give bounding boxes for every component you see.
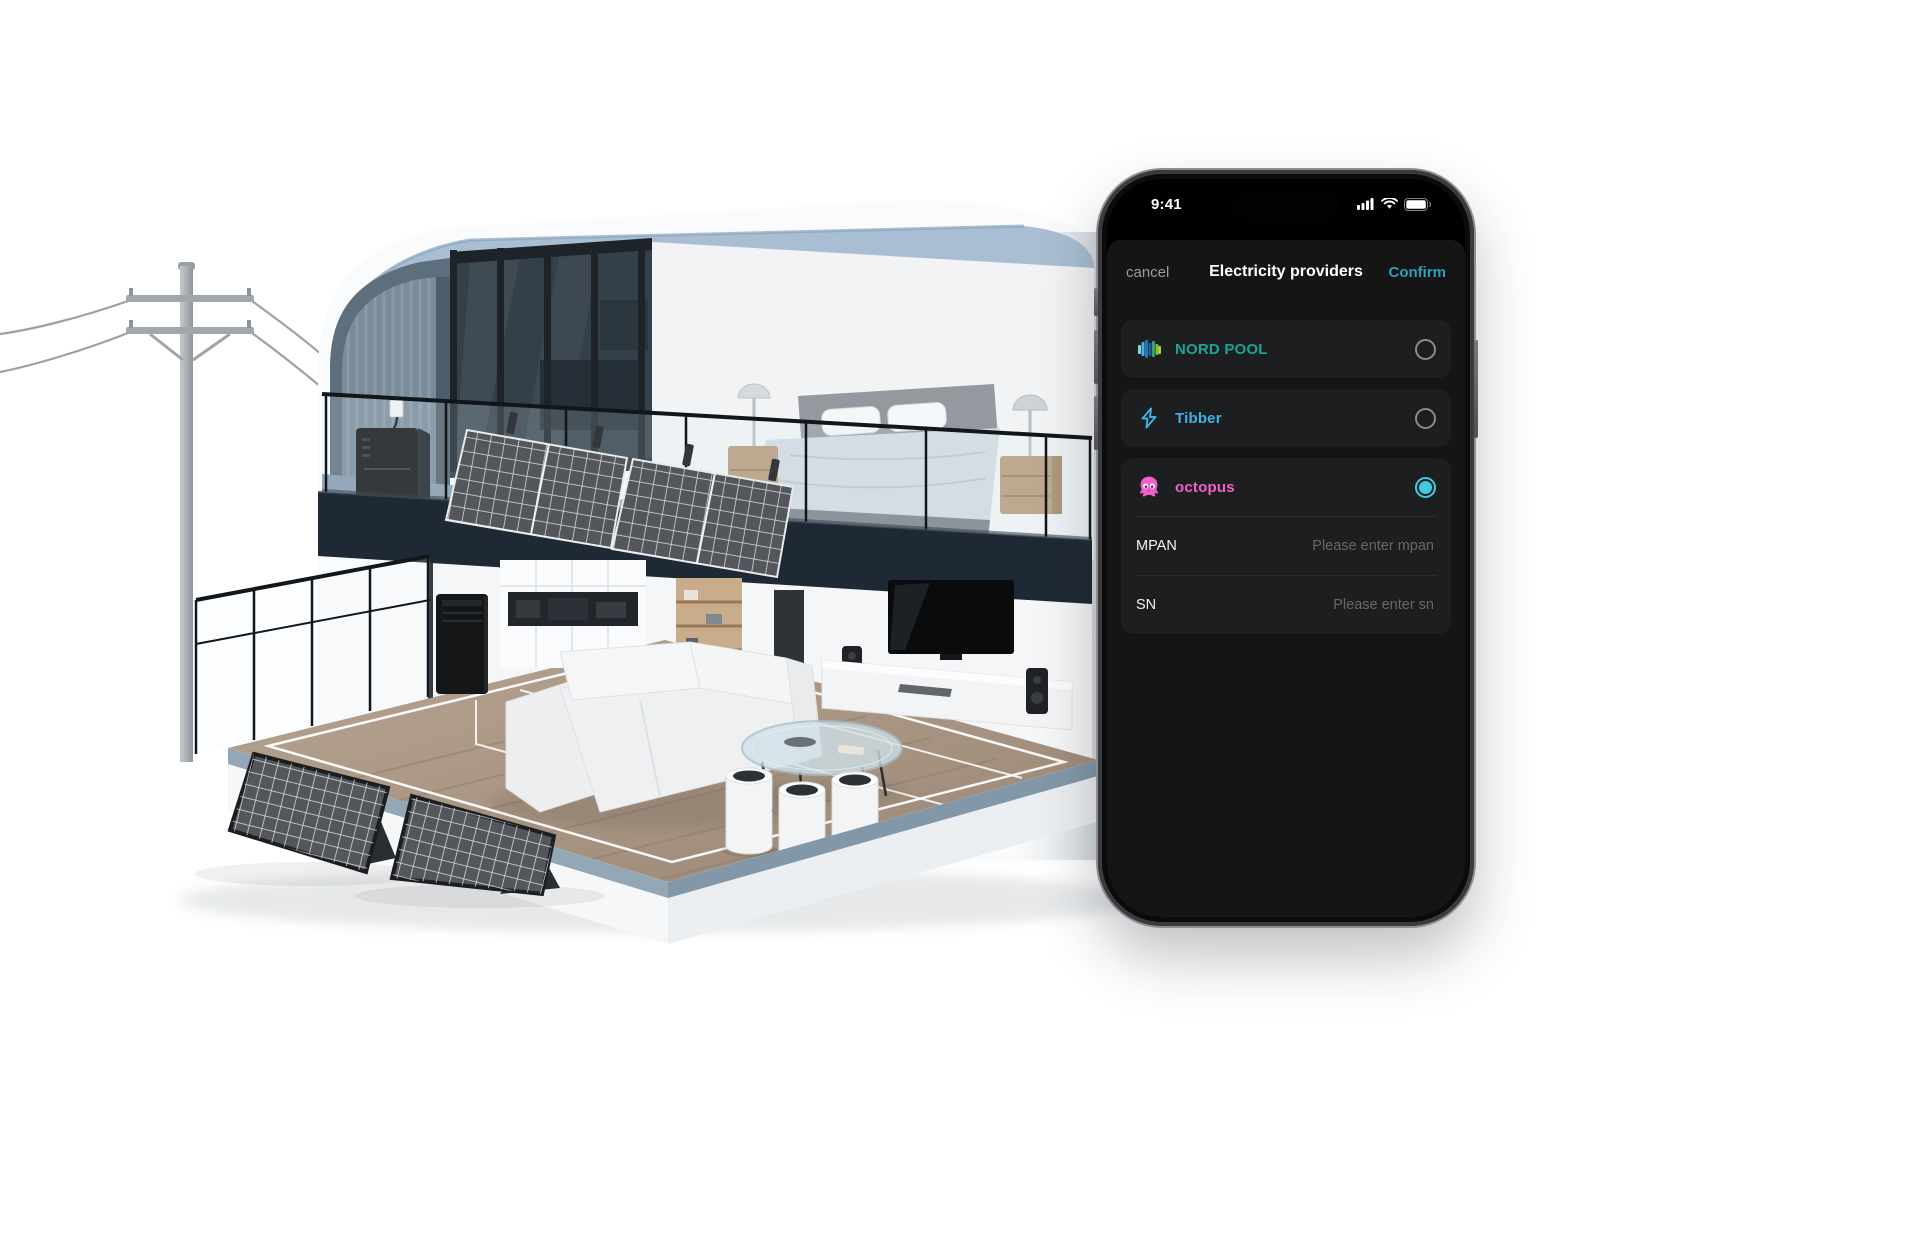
mpan-label: MPAN — [1136, 538, 1177, 554]
radio-nordpool[interactable] — [1415, 339, 1436, 360]
provider-card-nordpool[interactable]: NORD POOL — [1121, 320, 1451, 378]
status-icons — [1357, 198, 1431, 211]
phone-action-button — [1094, 288, 1098, 316]
nord-pool-logo-icon — [1136, 336, 1162, 362]
provider-row-octopus[interactable]: octopus — [1121, 458, 1451, 516]
battery-icon — [1404, 198, 1431, 211]
provider-card-tibber[interactable]: Tibber — [1121, 389, 1451, 447]
phone-volume-up-button — [1094, 330, 1098, 384]
phone-volume-down-button — [1094, 396, 1098, 450]
smart-home-illustration — [0, 0, 1920, 1253]
mpan-field-row[interactable]: MPAN — [1121, 517, 1451, 575]
octopus-icon — [1136, 474, 1162, 500]
battery-tower — [436, 594, 488, 694]
cellular-signal-icon — [1357, 198, 1375, 210]
confirm-button[interactable]: Confirm — [1389, 264, 1447, 281]
status-time: 9:41 — [1151, 196, 1182, 213]
phone-mockup: 9:41 — [1098, 170, 1474, 926]
page: 9:41 — [0, 0, 1920, 1253]
radio-octopus[interactable] — [1415, 477, 1436, 498]
provider-label-octopus: octopus — [1175, 479, 1235, 496]
wifi-icon — [1381, 198, 1398, 210]
tibber-bolt-icon — [1136, 405, 1162, 431]
status-bar: 9:41 — [1107, 193, 1465, 215]
provider-row-tibber[interactable]: Tibber — [1121, 389, 1451, 447]
provider-label-nordpool: NORD POOL — [1175, 341, 1268, 358]
provider-modal: Electricity providers cancel Confirm — [1107, 240, 1465, 917]
provider-label-tibber: Tibber — [1175, 410, 1222, 427]
modal-header: Electricity providers cancel Confirm — [1107, 240, 1465, 304]
provider-card-octopus: octopus MPAN SN — [1121, 458, 1451, 634]
phone-power-button — [1474, 340, 1478, 438]
wall-tv — [888, 580, 1014, 660]
phone-screen: 9:41 — [1107, 179, 1465, 917]
cancel-button[interactable]: cancel — [1126, 264, 1169, 281]
provider-list: NORD POOL Tibber — [1107, 304, 1465, 634]
provider-row-nordpool[interactable]: NORD POOL — [1121, 320, 1451, 378]
sn-field-row[interactable]: SN — [1121, 576, 1451, 634]
mpan-input[interactable] — [1187, 537, 1436, 555]
sn-input[interactable] — [1166, 596, 1436, 614]
radio-tibber[interactable] — [1415, 408, 1436, 429]
sn-label: SN — [1136, 597, 1156, 613]
